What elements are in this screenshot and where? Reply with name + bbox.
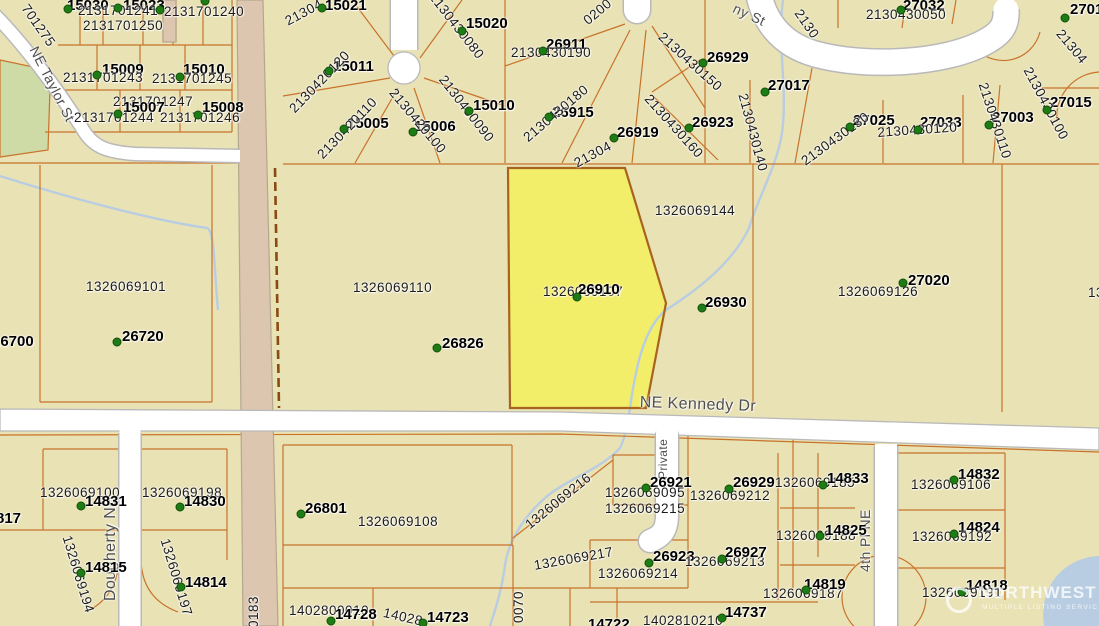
listing-marker-dot[interactable] [93,71,102,80]
listing-marker-dot[interactable] [816,532,825,541]
listing-marker-dot[interactable] [465,107,474,116]
listing-marker-dot[interactable] [114,4,123,13]
listing-marker-dot[interactable] [1043,106,1052,115]
listing-marker-dot[interactable] [539,47,548,56]
listing-marker-dot[interactable] [718,614,727,623]
listing-marker-dot[interactable] [699,59,708,68]
listing-marker-dot[interactable] [899,279,908,288]
watermark-brand: NORTHWEST [978,583,1097,603]
listing-marker-dot[interactable] [194,111,203,120]
listing-marker-dot[interactable] [725,485,734,494]
watermark-logo-icon [946,587,972,613]
listing-marker-dot[interactable] [985,121,994,130]
listing-marker-dot[interactable] [950,530,959,539]
listing-marker-dot[interactable] [846,123,855,132]
listing-marker-dot[interactable] [573,293,582,302]
listing-marker-dot[interactable] [433,344,442,353]
listing-marker-dot[interactable] [897,6,906,15]
listing-marker-dot[interactable] [718,555,727,564]
watermark-tagline: MULTIPLE LISTING SERVICE [982,604,1099,611]
listing-marker-dot[interactable] [176,73,185,82]
listing-marker-dot[interactable] [325,67,334,76]
listing-marker-dot[interactable] [698,304,707,313]
map-canvas[interactable]: NE Taylor Stny StNE Kennedy DrDougherty … [0,0,1099,626]
listing-marker-dot[interactable] [1061,14,1070,23]
listing-marker-dot[interactable] [64,5,73,14]
listing-marker-dot[interactable] [642,484,651,493]
listing-marker-dot[interactable] [77,569,86,578]
listing-marker-dot[interactable] [177,583,186,592]
listing-marker-dot[interactable] [113,338,122,347]
listing-marker-dot[interactable] [297,510,306,519]
listing-marker-dot[interactable] [645,559,654,568]
listing-marker-dot[interactable] [914,126,923,135]
listing-marker-dot[interactable] [545,113,554,122]
listing-marker-dot[interactable] [114,110,123,119]
listing-marker-dot[interactable] [950,476,959,485]
listing-marker-dot[interactable] [819,481,828,490]
listing-markers-layer [0,0,1099,626]
listing-marker-dot[interactable] [327,617,336,626]
listing-marker-dot[interactable] [419,619,428,626]
listing-marker-dot[interactable] [156,6,165,15]
listing-marker-dot[interactable] [340,125,349,134]
listing-marker-dot[interactable] [409,128,418,137]
listing-marker-dot[interactable] [685,124,694,133]
listing-marker-dot[interactable] [318,4,327,13]
listing-marker-dot[interactable] [802,586,811,595]
listing-marker-dot[interactable] [761,88,770,97]
listing-marker-dot[interactable] [176,503,185,512]
listing-marker-dot[interactable] [458,27,467,36]
listing-marker-dot[interactable] [77,502,86,511]
listing-marker-dot[interactable] [610,134,619,143]
listing-marker-dot[interactable] [201,0,210,6]
